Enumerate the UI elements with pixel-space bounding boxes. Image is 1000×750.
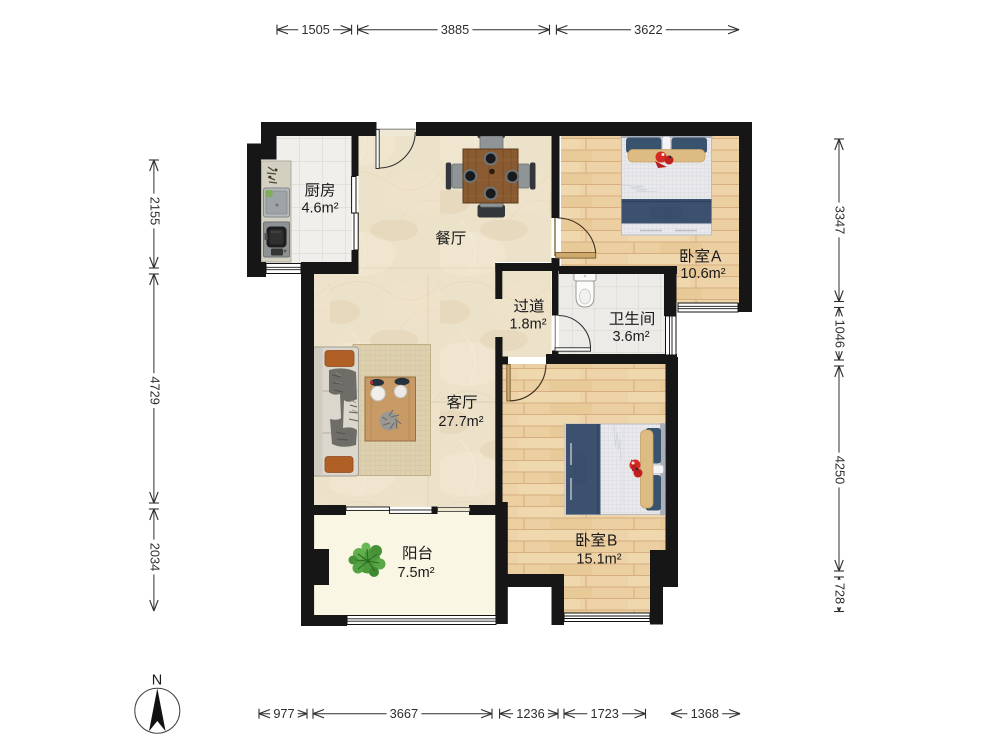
svg-text:1505: 1505 (301, 22, 329, 37)
svg-text:1368: 1368 (691, 706, 719, 721)
svg-text:1723: 1723 (590, 706, 618, 721)
svg-text:3622: 3622 (634, 22, 662, 37)
svg-text:B: B (607, 533, 617, 550)
svg-text:1.8m²: 1.8m² (509, 317, 546, 333)
svg-text:15.1m²: 15.1m² (576, 552, 621, 568)
svg-text:27.7m²: 27.7m² (438, 414, 483, 430)
svg-text:1236: 1236 (516, 706, 544, 721)
svg-text:4250: 4250 (833, 456, 848, 484)
svg-text:2155: 2155 (148, 197, 163, 225)
svg-text:1046: 1046 (833, 320, 848, 348)
svg-text:A: A (711, 249, 722, 266)
svg-text:3347: 3347 (833, 206, 848, 234)
svg-text:7.5m²: 7.5m² (397, 565, 434, 581)
svg-text:728: 728 (833, 583, 848, 604)
svg-text:3.6m²: 3.6m² (612, 329, 649, 345)
svg-text:4729: 4729 (148, 376, 163, 404)
svg-text:2034: 2034 (148, 543, 163, 571)
svg-text:N: N (152, 673, 162, 689)
svg-text:3885: 3885 (441, 22, 469, 37)
svg-text:10.6m²: 10.6m² (680, 266, 725, 282)
svg-text:977: 977 (273, 706, 294, 721)
svg-text:4.6m²: 4.6m² (301, 201, 338, 217)
svg-text:3667: 3667 (390, 706, 418, 721)
